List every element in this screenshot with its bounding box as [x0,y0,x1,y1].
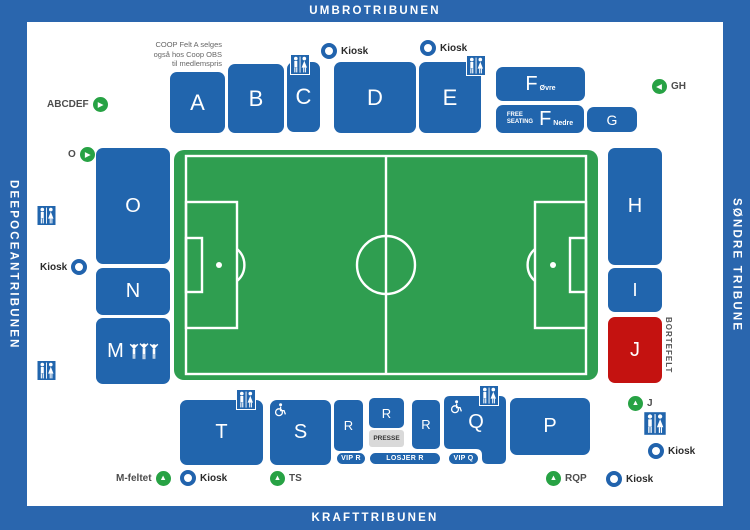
section-g[interactable]: G [587,107,637,132]
section-a[interactable]: A [170,72,225,133]
tribune-bottom-label: KRAFTTRIBUNEN [312,512,439,524]
section-d[interactable]: D [334,62,416,133]
kiosk-marker: Kiosk [606,471,653,487]
kiosk-icon [606,471,622,487]
wc-icon [36,205,57,226]
kiosk-icon [420,40,436,56]
section-f-ovre[interactable]: F Øvre [496,67,585,101]
gate-ts: TS [270,471,302,486]
football-pitch [173,149,599,381]
kiosk-icon [71,259,87,275]
wc-icon [643,411,667,436]
section-m[interactable]: M [96,318,170,384]
kiosk-marker: Kiosk [321,43,368,59]
section-r3[interactable]: R [412,400,440,449]
arrow-up-icon [546,471,561,486]
wheelchair-icon [274,403,287,417]
gate-j: J [628,396,653,411]
section-f-nedre[interactable]: FREE SEATING F Nedre [496,105,584,133]
kiosk-marker: Kiosk [40,259,87,275]
tribune-top-label: UMBROTRIBUNEN [309,5,440,17]
tribune-right-label: SØNDRE TRIBUNE [731,198,743,332]
section-b[interactable]: B [228,64,284,133]
wc-icon [236,389,256,410]
gate-abcdef: ABCDEF [47,97,108,112]
wc-icon [36,360,57,381]
stadium-map: UMBROTRIBUNEN KRAFTTRIBUNEN DEEPOCEANTRI… [0,0,750,530]
tribune-left-label: DEEPOCEANTRIBUNEN [8,180,20,350]
gate-rqp: RQP [546,471,587,486]
section-s[interactable]: S [270,400,331,465]
badge-losjer-r[interactable]: LOSJER R [368,451,442,466]
gate-o: O [68,147,95,162]
tribune-top: UMBROTRIBUNEN [0,0,750,22]
kiosk-marker: Kiosk [648,443,695,459]
arrow-right-icon [93,97,108,112]
section-r1[interactable]: R [334,400,363,451]
tribune-right: SØNDRE TRIBUNE [723,0,750,530]
wc-icon [466,55,486,76]
kiosk-icon [321,43,337,59]
gate-m-feltet: M-feltet [116,471,171,486]
kiosk-marker: Kiosk [420,40,467,56]
arrow-right-icon [80,147,95,162]
gate-gh: GH [652,79,686,94]
section-i[interactable]: I [608,268,662,312]
wheelchair-icon [450,400,463,414]
badge-vip-q[interactable]: VIP Q [447,451,480,466]
arrow-up-icon [270,471,285,486]
tribune-left: DEEPOCEANTRIBUNEN [0,0,27,530]
arrow-up-icon [628,396,643,411]
presse-box: PRESSE [369,430,404,447]
coop-note: COOP Felt A selges også hos Coop OBS til… [138,40,222,69]
section-n[interactable]: N [96,268,170,315]
tribune-bottom: KRAFTTRIBUNEN [0,506,750,530]
section-h[interactable]: H [608,148,662,265]
bortefelt-label: BORTEFELT [664,317,673,383]
section-o[interactable]: O [96,148,170,264]
free-seating-label: FREE SEATING [507,112,533,126]
section-j-away[interactable]: J [608,317,662,383]
kiosk-marker: Kiosk [180,470,227,486]
kiosk-icon [180,470,196,486]
wc-icon [478,385,500,406]
wc-icon [290,54,310,75]
section-r2[interactable]: R [369,398,404,428]
kiosk-icon [648,443,664,459]
section-p[interactable]: P [510,398,590,455]
badge-vip-r[interactable]: VIP R [335,451,367,466]
family-icon [129,343,159,360]
arrow-up-icon [156,471,171,486]
arrow-left-icon [652,79,667,94]
